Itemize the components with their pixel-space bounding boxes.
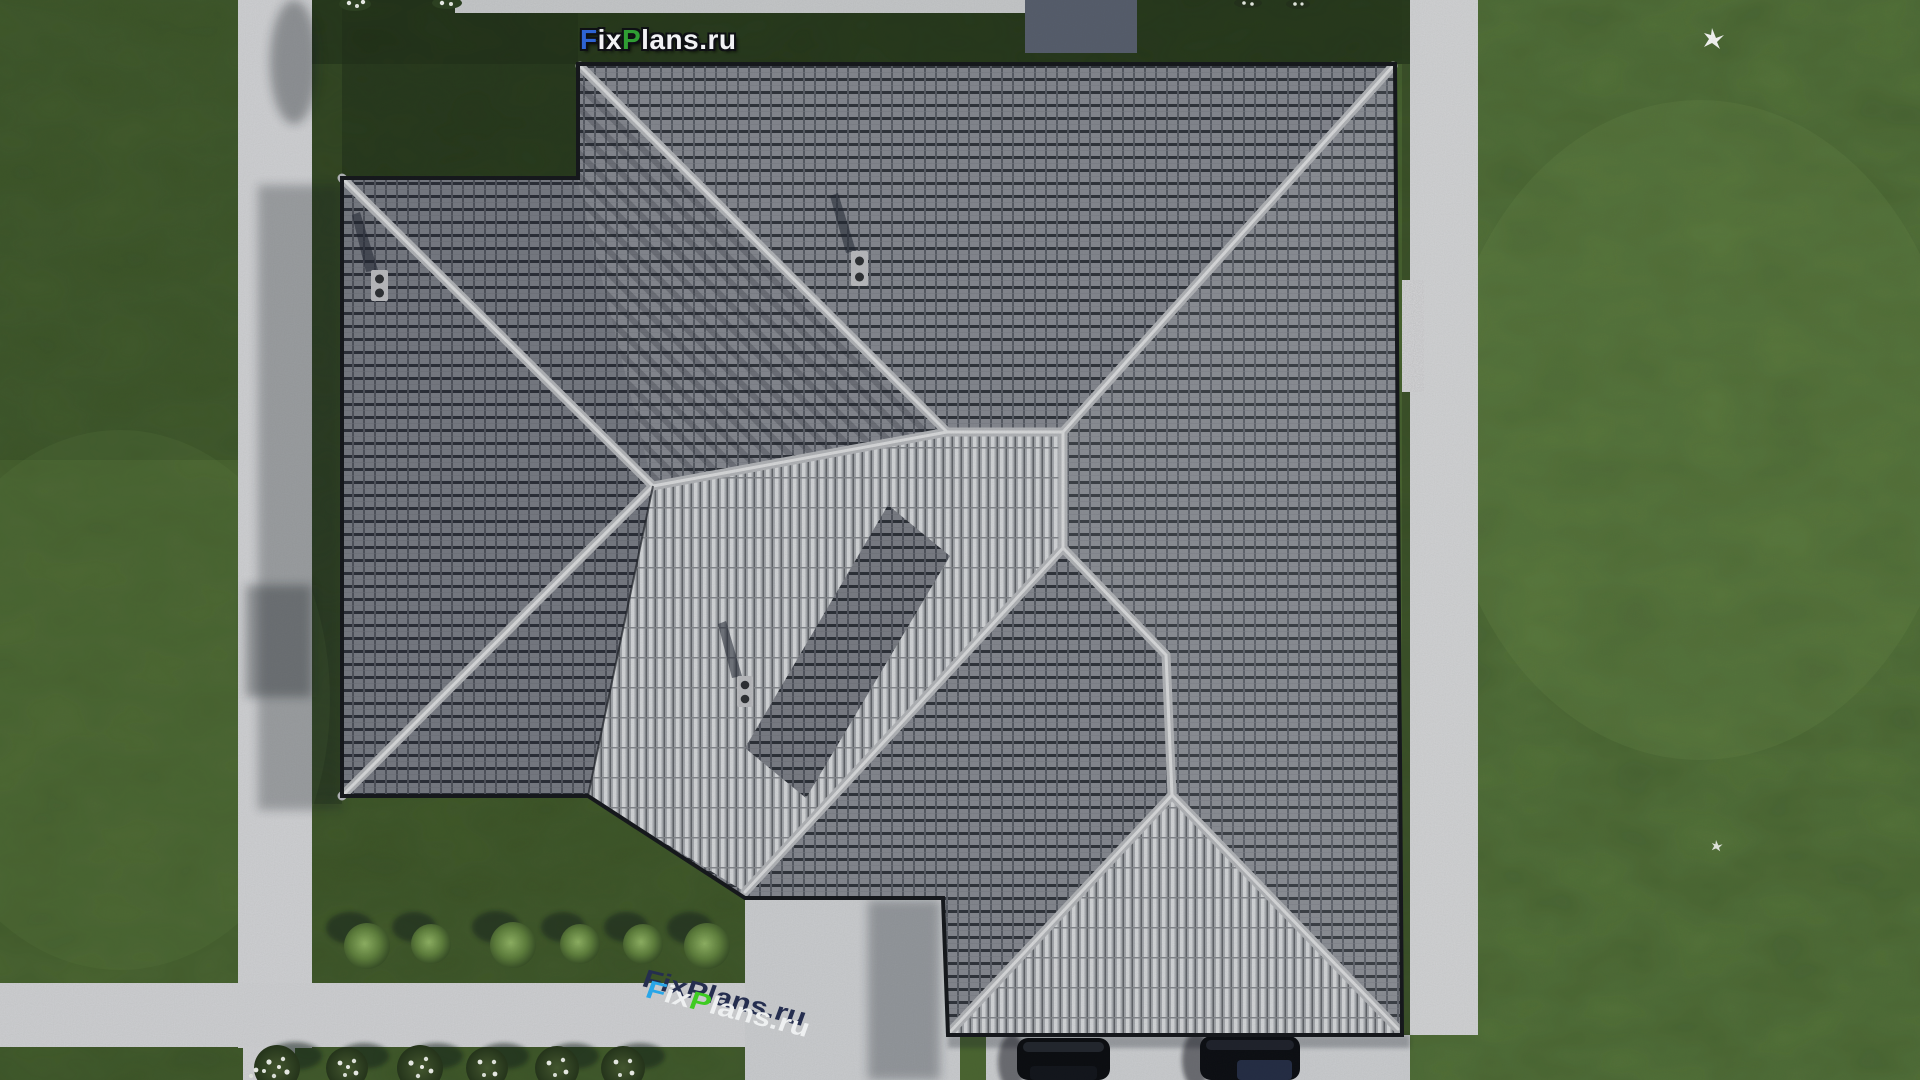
watermark-letters-lans: lans [641,24,699,55]
film-grain [0,0,1920,1080]
watermark-letters-ix: ix [598,24,622,55]
watermark-top: FixPlans.ru [580,24,736,56]
aerial-house-render: FixPlans.ru FixPlans.ru FixPlans.ru [0,0,1920,1080]
watermark-letter-f: F [580,24,598,55]
render-canvas [0,0,1920,1080]
watermark-dotru: .ru [699,24,736,55]
watermark-letter-p: P [622,24,641,55]
